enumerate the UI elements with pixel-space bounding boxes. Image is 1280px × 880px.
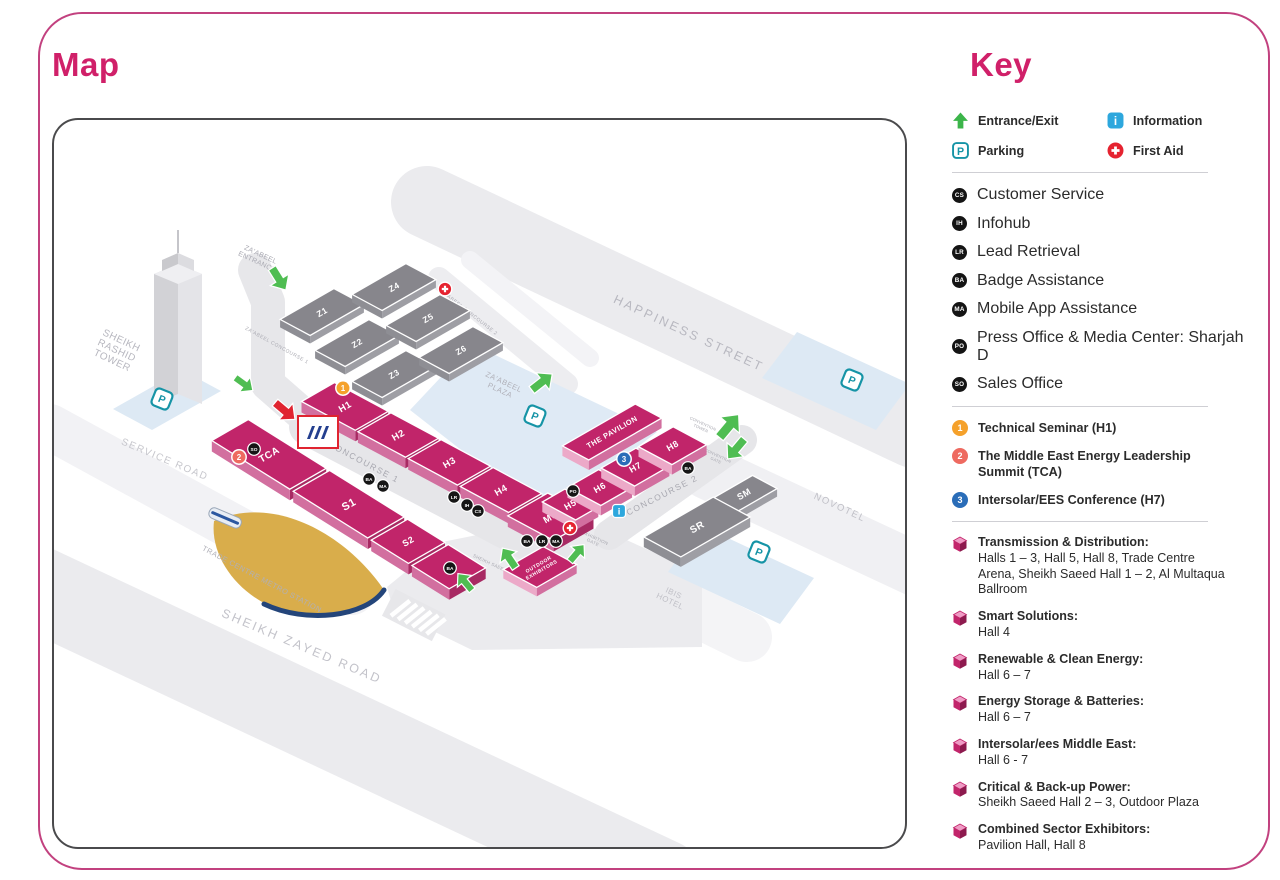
service-badge-icon: SO [952,377,967,392]
sector-halls: Pavilion Hall, Hall 8 [978,838,1086,852]
session-label: The Middle East Energy Leadership Summit… [978,448,1216,480]
sheikh-rashid-tower-building [154,230,202,404]
sector-cube-icon [952,781,968,798]
service-badge-ma-icon: MA [377,480,390,493]
sector-cube-icon [952,695,968,712]
sector-text: Intersolar/ees Middle East:Hall 6 - 7 [978,737,1136,769]
key-divider [952,406,1208,407]
sector-text: Combined Sector Exhibitors:Pavilion Hall… [978,822,1150,854]
key-sector-item: Transmission & Distribution:Halls 1 – 3,… [952,535,1244,598]
session-number: 1 [341,384,346,393]
key-service-item: LRLead Retrieval [952,243,1244,261]
sector-cube-icon [952,823,968,840]
svg-text:i: i [1114,115,1117,128]
service-label: Sales Office [977,375,1063,393]
key-symbol-first-aid: First Aid [1107,142,1244,159]
service-badge-so-icon: SO [248,443,261,456]
key-service-item: BABadge Assistance [952,272,1244,290]
sector-text: Renewable & Clean Energy:Hall 6 – 7 [978,652,1143,684]
badge-code: MA [552,539,560,545]
session-marker-2-icon: 2 [232,450,246,464]
parking-icon: P [952,142,969,159]
key-sector-item: Renewable & Clean Energy:Hall 6 – 7 [952,652,1244,684]
key-session-item: 2The Middle East Energy Leadership Summi… [952,448,1244,480]
badge-code: BA [524,539,531,545]
service-badge-lr-icon: LR [536,535,549,548]
entrance-arrow-icon [952,112,969,129]
key-service-item: IHInfohub [952,215,1244,233]
key-symbol-label: Information [1133,114,1202,128]
svg-text:P: P [957,146,964,158]
key-service-item: SOSales Office [952,375,1244,393]
key-services: CSCustomer Service IHInfohub LRLead Retr… [952,186,1244,393]
key-sectors: Transmission & Distribution:Halls 1 – 3,… [952,535,1244,854]
sector-title: Intersolar/ees Middle East: [978,737,1136,751]
service-label: Badge Assistance [977,272,1104,290]
sector-cube-icon [952,738,968,755]
service-label: Lead Retrieval [977,243,1080,261]
badge-code: IH [465,503,470,509]
service-label: Infohub [977,215,1030,233]
sector-text: Transmission & Distribution:Halls 1 – 3,… [978,535,1234,598]
service-badge-icon: BA [952,273,967,288]
key-divider [952,521,1208,522]
sector-cube-icon [952,610,968,627]
key-sector-item: Critical & Back-up Power:Sheikh Saeed Ha… [952,780,1244,812]
map-section-title: Map [52,46,120,84]
sector-title: Smart Solutions: [978,609,1078,623]
key-sector-item: Energy Storage & Batteries:Hall 6 – 7 [952,694,1244,726]
sector-text: Energy Storage & Batteries:Hall 6 – 7 [978,694,1144,726]
key-sector-item: Intersolar/ees Middle East:Hall 6 - 7 [952,737,1244,769]
service-badge-po-icon: PO [567,485,580,498]
sector-title: Combined Sector Exhibitors: [978,822,1150,836]
service-badge-icon: LR [952,245,967,260]
session-number-icon: 3 [952,492,968,508]
service-badge-icon: IH [952,216,967,231]
service-label: Customer Service [977,186,1104,204]
session-label: Intersolar/EES Conference (H7) [978,492,1165,508]
information-icon: i [1107,112,1124,129]
first-aid-icon [1107,142,1124,159]
sector-halls: Halls 1 – 3, Hall 5, Hall 8, Trade Centr… [978,551,1225,597]
convention-tower-label: CONVENTIONTOWER [687,415,717,436]
key-panel: Entrance/Exit i Information P Parking Fi… [952,112,1244,865]
key-session-item: 3Intersolar/EES Conference (H7) [952,492,1244,508]
session-label: Technical Seminar (H1) [978,420,1116,436]
badge-code: LR [451,495,458,501]
session-number: 2 [237,453,242,462]
sector-cube-icon [952,653,968,670]
first-aid-icon [563,521,577,535]
key-service-item: POPress Office & Media Center: Sharjah D [952,329,1244,365]
sector-halls: Sheikh Saeed Hall 2 – 3, Outdoor Plaza [978,795,1199,809]
sector-text: Smart Solutions:Hall 4 [978,609,1078,641]
badge-code: CS [475,509,482,515]
key-service-item: MAMobile App Assistance [952,300,1244,318]
service-badge-icon: CS [952,188,967,203]
information-icon: i [613,505,626,518]
sector-halls: Hall 6 - 7 [978,753,1028,767]
sector-cube-icon [952,536,968,553]
key-symbol-label: First Aid [1133,144,1184,158]
sector-title: Energy Storage & Batteries: [978,694,1144,708]
key-session-item: 1Technical Seminar (H1) [952,420,1244,436]
service-label: Mobile App Assistance [977,300,1137,318]
sector-halls: Hall 4 [978,625,1010,639]
site-map: HAPPINESS STREETSHEIKH ZAYED ROADSERVICE… [54,120,905,847]
sector-halls: Hall 6 – 7 [978,668,1031,682]
badge-code: BA [366,477,373,483]
sector-halls: Hall 6 – 7 [978,710,1031,724]
session-marker-1-icon: 1 [336,381,350,395]
badge-code: BA [685,466,692,472]
key-sector-item: Smart Solutions:Hall 4 [952,609,1244,641]
sector-title: Critical & Back-up Power: [978,780,1131,794]
session-number: 3 [622,455,627,464]
sector-title: Renewable & Clean Energy: [978,652,1143,666]
sector-text: Critical & Back-up Power:Sheikh Saeed Ha… [978,780,1199,812]
service-badge-icon: PO [952,339,967,354]
key-section-title: Key [970,46,1032,84]
key-symbol-information: i Information [1107,112,1244,129]
key-symbol-entrance: Entrance/Exit [952,112,1107,129]
service-badge-ba-icon: BA [682,462,695,475]
session-number-icon: 2 [952,448,968,464]
service-badge-ba-icon: BA [363,473,376,486]
sector-title: Transmission & Distribution: [978,535,1149,549]
badge-code: LR [539,539,546,545]
service-badge-ba-icon: BA [444,562,457,575]
key-symbol-label: Entrance/Exit [978,114,1059,128]
badge-code: SO [251,447,258,453]
session-number-icon: 1 [952,420,968,436]
service-badge-ma-icon: MA [550,535,563,548]
session-marker-3-icon: 3 [617,452,631,466]
map-panel: HAPPINESS STREETSHEIKH ZAYED ROADSERVICE… [52,118,907,849]
key-symbol-label: Parking [978,144,1024,158]
key-divider [952,172,1208,173]
info-letter: i [618,506,621,517]
key-sessions: 1Technical Seminar (H1) 2The Middle East… [952,420,1244,508]
key-sector-item: Combined Sector Exhibitors:Pavilion Hall… [952,822,1244,854]
key-symbol-parking: P Parking [952,142,1107,159]
badge-code: BA [447,566,454,572]
service-badge-cs-icon: CS [472,505,485,518]
key-service-item: CSCustomer Service [952,186,1244,204]
badge-code: PO [570,489,577,495]
service-badge-lr-icon: LR [448,491,461,504]
first-aid-icon [438,282,452,296]
key-symbols: Entrance/Exit i Information P Parking Fi… [952,112,1244,159]
badge-code: MA [379,484,387,490]
sheikh-rashid-tower-label: SHEIKHRASHIDTOWER [91,327,142,374]
service-badge-ba-icon: BA [521,535,534,548]
service-badge-icon: MA [952,302,967,317]
service-label: Press Office & Media Center: Sharjah D [977,329,1244,365]
organizer-logo-marker [298,416,338,448]
